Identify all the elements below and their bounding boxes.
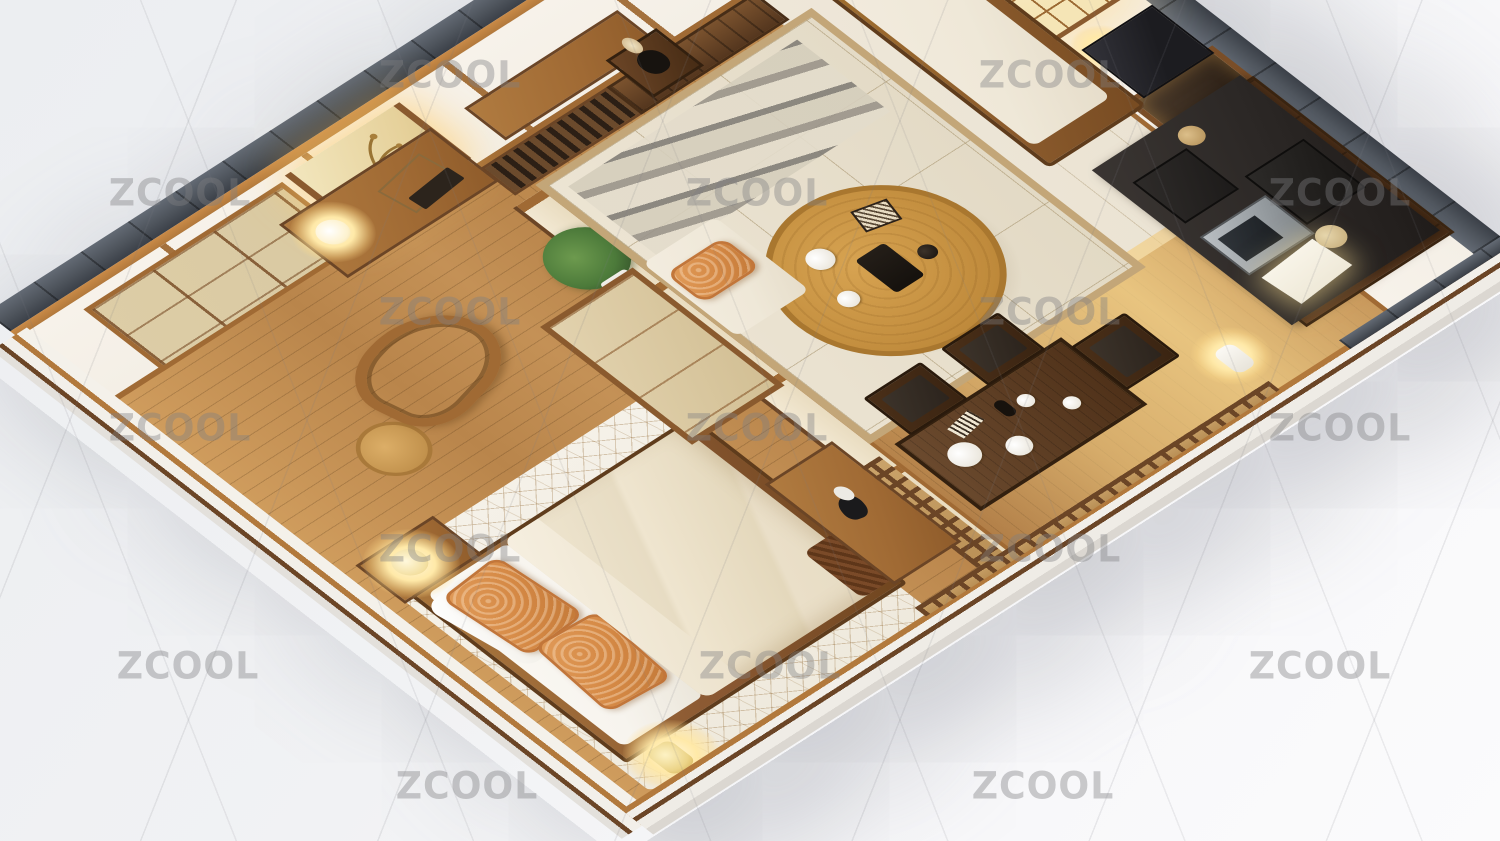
table-dish-2 (832, 287, 865, 310)
dining-plate-2 (1000, 432, 1039, 460)
watermark-text: ZCOOL (1249, 645, 1392, 688)
table-dish-1 (799, 244, 842, 274)
patterned-card (850, 199, 902, 233)
striped-tray (947, 410, 985, 438)
chair-seat (881, 375, 950, 423)
dining-plate-1 (940, 437, 989, 472)
dining-cup-2 (1059, 394, 1085, 413)
watermark-text: ZCOOL (117, 645, 260, 688)
dark-bottle (991, 398, 1019, 418)
watermark-text: ZCOOL (972, 765, 1115, 808)
microwave-window (1218, 215, 1284, 261)
chair-seat (1089, 325, 1163, 377)
tea-tray (855, 243, 925, 294)
dark-cup (913, 241, 943, 262)
dining-cup-1 (1013, 391, 1039, 410)
apartment-scene (30, 0, 1480, 801)
render-canvas: ZCOOLZCOOLZCOOLZCOOLZCOOLZCOOLZCOOLZCOOL… (0, 0, 1500, 841)
chair-seat (959, 325, 1028, 373)
